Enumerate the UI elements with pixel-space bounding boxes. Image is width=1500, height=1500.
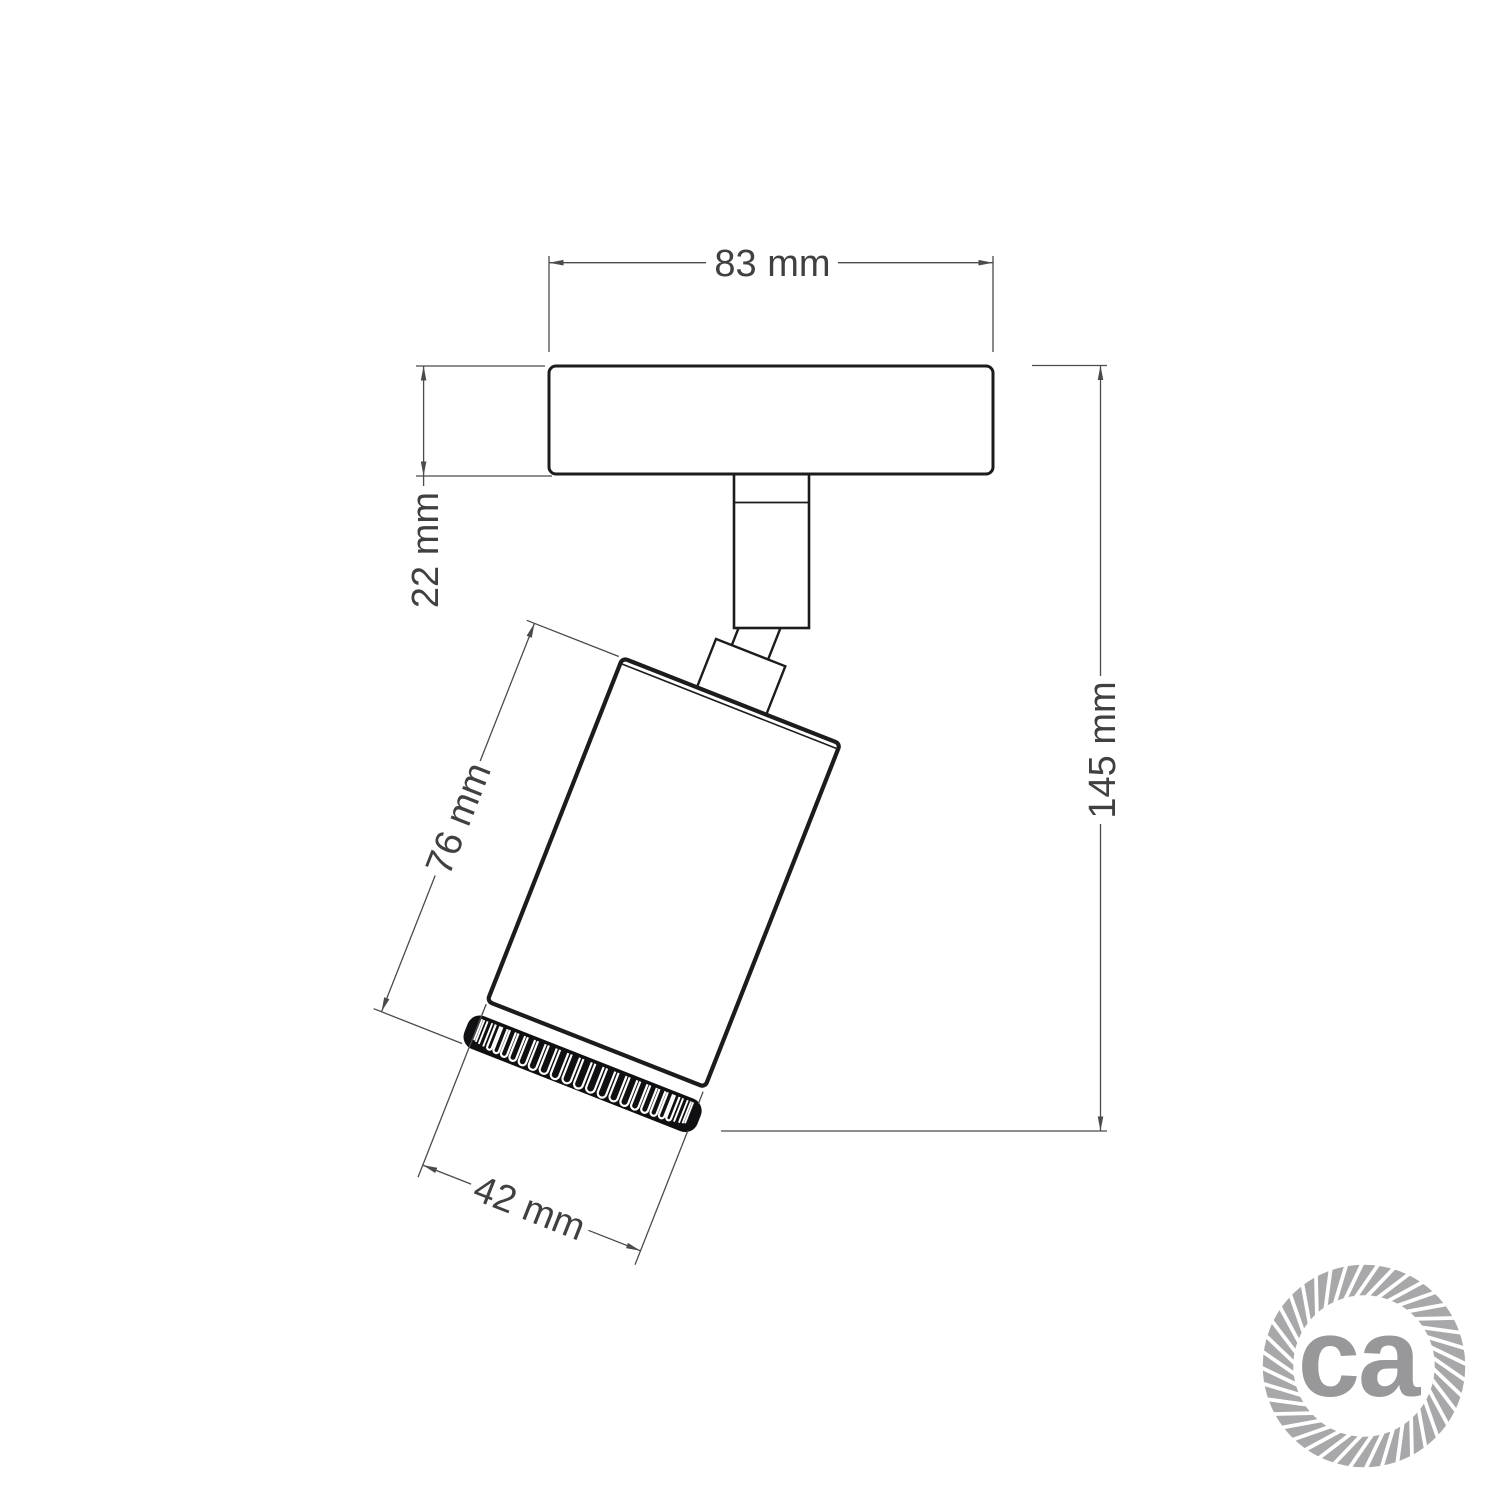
svg-text:22 mm: 22 mm [405,492,447,608]
svg-text:145 mm: 145 mm [1082,681,1124,818]
svg-text:ca: ca [1298,1295,1421,1420]
svg-text:83 mm: 83 mm [714,243,830,285]
